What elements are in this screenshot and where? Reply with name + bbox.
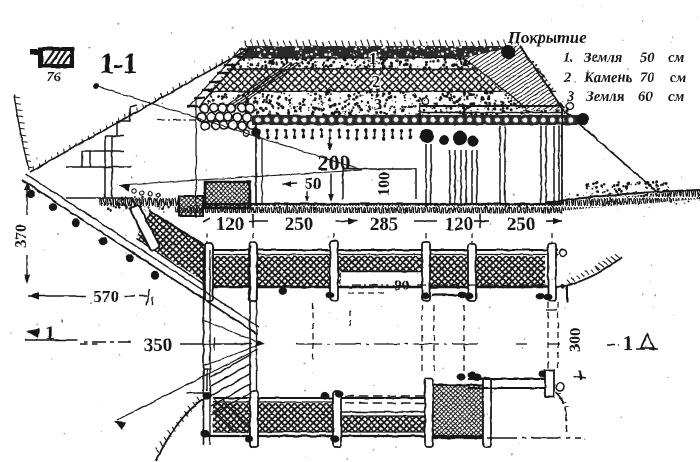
svg-text:90: 90 [395,278,410,294]
svg-text:350: 350 [144,335,173,356]
svg-text:570: 570 [93,287,119,306]
svg-text:50: 50 [305,174,322,193]
svg-text:250: 250 [507,214,536,235]
svg-text:250: 250 [285,214,314,235]
svg-text:76: 76 [47,70,61,85]
svg-text:3: 3 [566,89,574,105]
svg-text:1.: 1. [563,50,574,66]
svg-text:2: 2 [563,70,571,86]
svg-text:см: см [668,50,684,66]
svg-text:285: 285 [370,214,399,235]
svg-text:100: 100 [376,172,393,196]
svg-text:300: 300 [567,328,584,352]
svg-text:Покрытие: Покрытие [507,28,586,47]
svg-text:70: 70 [640,70,655,86]
svg-text:120: 120 [216,214,245,235]
svg-text:см: см [668,89,684,105]
svg-text:Камень: Камень [583,70,633,86]
svg-text:120: 120 [445,214,474,235]
svg-text:2: 2 [372,72,381,91]
svg-text:3: 3 [374,95,383,114]
svg-text:1-1: 1-1 [100,47,137,80]
svg-text:1: 1 [623,331,634,355]
svg-text:см: см [670,70,686,86]
svg-text:Земля: Земля [583,50,622,66]
svg-text:50: 50 [640,50,655,66]
svg-text:Земля: Земля [585,89,624,105]
svg-text:': ' [60,316,63,330]
svg-text:60: 60 [638,89,653,105]
svg-text:370: 370 [13,224,30,248]
svg-text:1: 1 [369,49,378,68]
